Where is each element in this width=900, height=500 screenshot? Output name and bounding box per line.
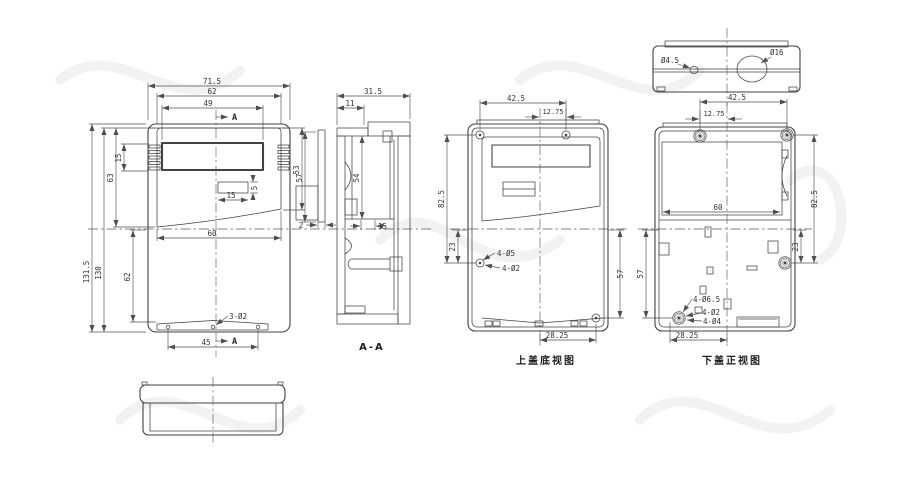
dim-window-width: 49 bbox=[203, 99, 212, 108]
aa-extension-lines bbox=[337, 93, 410, 230]
dim-button-height: 5 bbox=[250, 186, 259, 191]
dim-lid-width: 62 bbox=[207, 87, 216, 96]
top-view: Ø4.5 Ø16 bbox=[653, 28, 800, 106]
aa-depth-dim: 31.5 bbox=[364, 87, 382, 96]
bc-pilot-holes-label: 4-Ø2 bbox=[702, 308, 720, 317]
panel-height-dim: 57 bbox=[295, 173, 304, 182]
dim-vent-height: 15 bbox=[114, 153, 123, 162]
dim-hole-span: 45 bbox=[201, 338, 210, 347]
dim-mid-width: 60 bbox=[207, 229, 217, 238]
bc-compartment-width: 60 bbox=[713, 203, 723, 212]
drawing-svg: 71.5 62 49 131.5 130 63 15 62 53 60 45 1… bbox=[0, 0, 900, 500]
screw-boss bbox=[694, 130, 706, 142]
front-extension-lines bbox=[89, 83, 305, 350]
bc-lower-screw-x: 28.25 bbox=[676, 331, 699, 340]
aa-view-label: A-A bbox=[359, 342, 385, 353]
section-marker-bottom: A bbox=[216, 337, 237, 347]
panel-boss bbox=[296, 186, 318, 220]
bc-screw-offset: 12.75 bbox=[703, 110, 724, 118]
screw-hole bbox=[592, 314, 600, 322]
dim-lid-height-left: 63 bbox=[106, 173, 115, 182]
bottom-opening bbox=[737, 317, 779, 327]
section-marker-top-label: A bbox=[232, 113, 237, 123]
technical-drawing-canvas: 71.5 62 49 131.5 130 63 15 62 53 60 45 1… bbox=[0, 0, 900, 500]
screw-boss bbox=[779, 257, 791, 269]
vent-slots-right bbox=[278, 145, 289, 170]
front-body bbox=[148, 124, 290, 332]
bc-boss-holes-label: 4-Ø6.5 bbox=[693, 295, 720, 304]
aa-step-dim: 15 bbox=[378, 222, 387, 231]
large-hole-label: Ø16 bbox=[770, 48, 784, 57]
section-aa-view: 31.5 11 54 15 A-A bbox=[337, 87, 410, 353]
screw-hole bbox=[562, 131, 570, 139]
front-view: 71.5 62 49 131.5 130 63 15 62 53 60 45 1… bbox=[82, 77, 432, 357]
tc-lower-screw-y: 57 bbox=[616, 269, 625, 278]
screw-hole bbox=[476, 131, 484, 139]
tc-extension-lines bbox=[444, 100, 624, 343]
bc-screw-span-x: 42.5 bbox=[728, 93, 746, 102]
front-panel-section: 57 2 bbox=[295, 130, 336, 230]
screw-boss bbox=[781, 129, 793, 141]
tc-screw-span-y: 82.5 bbox=[437, 190, 446, 208]
tc-display-window bbox=[492, 145, 590, 167]
small-hole-label: Ø4.5 bbox=[661, 56, 679, 65]
panel-thickness-dim: 2 bbox=[299, 221, 304, 230]
tc-lower-screw-x: 28.25 bbox=[546, 331, 569, 340]
bc-lower-screw-y: 57 bbox=[636, 269, 645, 278]
bc-hole-callouts: 4-Ø6.5 4-Ø2 4-Ø4 bbox=[683, 295, 722, 326]
tc-screw-holes-label: 4-Ø5 bbox=[497, 249, 515, 258]
boss-section bbox=[345, 238, 352, 254]
dim-total-height: 131.5 bbox=[82, 261, 91, 284]
bc-view-label: 下盖正视图 bbox=[702, 354, 762, 367]
tc-mid-screw-offset: 23 bbox=[448, 242, 457, 251]
front-dimensions: 71.5 62 49 131.5 130 63 15 62 53 60 45 1… bbox=[82, 77, 302, 347]
bc-screw-holes-label: 4-Ø4 bbox=[703, 317, 722, 326]
dim-lower-height: 62 bbox=[123, 272, 132, 281]
tc-pilot-holes-label: 4-Ø2 bbox=[502, 264, 520, 273]
screw-hole bbox=[476, 259, 484, 267]
dim-button-width: 15 bbox=[226, 191, 235, 200]
screw-boss bbox=[673, 312, 685, 324]
tc-body bbox=[468, 120, 608, 331]
bottom-cover-front-view: 42.5 12.75 82.5 23 57 28.25 bbox=[636, 93, 819, 367]
dim-body-height: 130 bbox=[94, 266, 103, 280]
tc-screw-offset: 12.75 bbox=[542, 108, 563, 116]
bottom-holes-label: 3-Ø2 bbox=[229, 312, 247, 321]
section-marker-top: A bbox=[216, 113, 237, 123]
aa-lid-depth-dim: 11 bbox=[345, 99, 354, 108]
bottom-holes-callout: 3-Ø2 bbox=[216, 312, 247, 325]
top-cover-bottom-view: 42.5 12.75 82.5 23 57 28.25 bbox=[437, 94, 627, 367]
bc-body bbox=[655, 123, 795, 331]
vent-slots-left bbox=[149, 145, 160, 170]
lcd-bump bbox=[345, 162, 351, 190]
section-marker-bottom-label: A bbox=[232, 337, 237, 347]
tc-screw-span-x: 42.5 bbox=[507, 94, 525, 103]
bc-screw-span-y: 82.5 bbox=[810, 190, 819, 208]
clip-arc bbox=[782, 156, 787, 196]
tc-view-label: 上盖底视图 bbox=[516, 354, 576, 367]
dim-lid-height-right: 53 bbox=[292, 165, 301, 174]
aa-cavity-height-dim: 54 bbox=[352, 173, 361, 183]
dim-total-width: 71.5 bbox=[203, 77, 221, 86]
display-window bbox=[162, 143, 263, 170]
